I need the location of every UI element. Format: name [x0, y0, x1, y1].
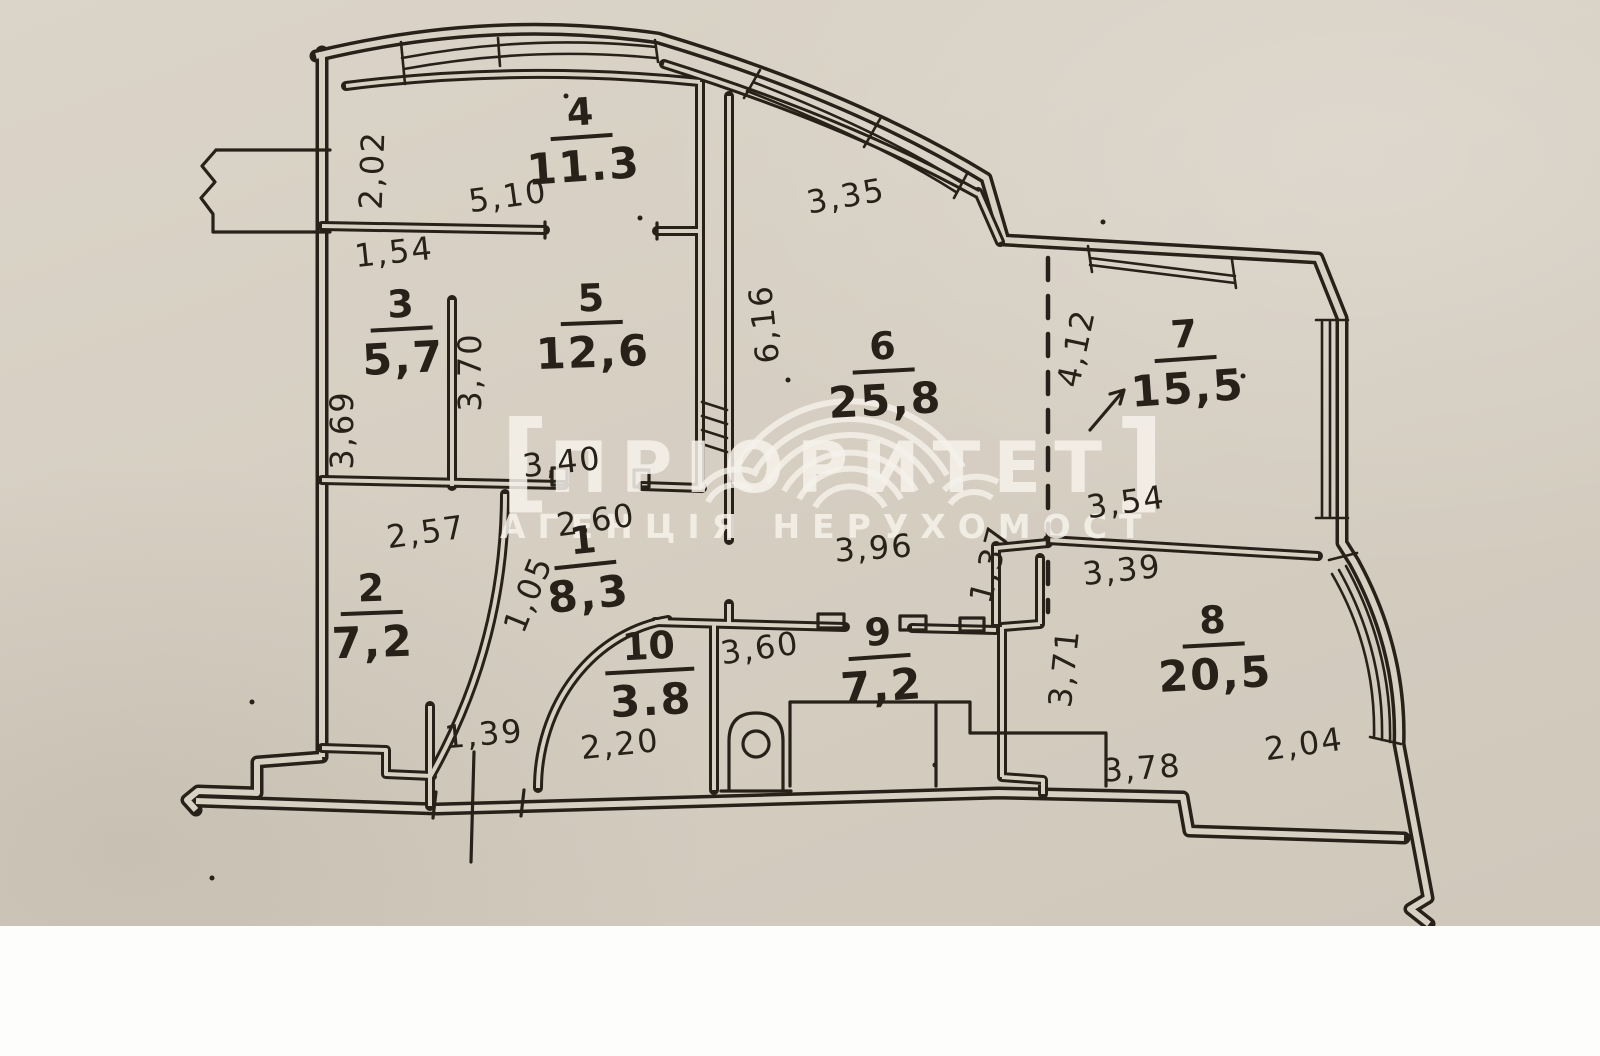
dim-3-70: 3,70: [451, 332, 489, 411]
room-number: 7: [1151, 312, 1217, 363]
toilet-icon: [721, 713, 791, 791]
room-label-10: 10 3.8: [603, 624, 697, 728]
bathroom-partitions: [790, 702, 1106, 786]
room-area: 12,6: [535, 326, 651, 380]
dim-3-78: 3,78: [1101, 746, 1183, 789]
room-area: 3.8: [606, 673, 697, 728]
dim-2-02: 2,02: [352, 130, 393, 211]
room-area: 20,5: [1157, 647, 1274, 703]
room-label-9: 9 7,2: [836, 609, 925, 714]
room-area: 8,3: [545, 566, 632, 624]
room-area: 7,2: [331, 616, 415, 669]
dim-6-16: 6,16: [741, 283, 787, 366]
room-area: 5,7: [361, 332, 446, 386]
entry-arrow-icon: [1090, 390, 1124, 430]
room-label-2: 2 7,2: [329, 567, 415, 670]
room-area: 7,2: [839, 659, 924, 715]
room-number: 3: [368, 282, 433, 332]
room-label-8: 8 20,5: [1154, 597, 1273, 703]
room-area: 15,5: [1129, 360, 1246, 418]
room-label-3: 3 5,7: [358, 282, 445, 386]
room-number: 6: [850, 324, 915, 374]
room-number: 2: [339, 567, 403, 616]
room-area: 25,8: [827, 373, 944, 429]
room-label-6: 6 25,8: [824, 323, 943, 429]
vent-shaft-hatch: [702, 402, 727, 452]
room-label-5: 5 12,6: [533, 276, 651, 380]
room-label-7: 7 15,5: [1126, 310, 1247, 418]
floorplan-scan-page: [ ПРІОРИТЕТ ] АГЕНЦІЯ НЕРУХОМОСТ 4 11.3 …: [0, 0, 1600, 1056]
wall-break-stub: [201, 150, 330, 232]
floorplan-drawing: [0, 0, 1600, 1056]
scan-white-margin: [0, 926, 1600, 1056]
dim-3-96: 3,96: [833, 526, 915, 569]
room-number: 8: [1180, 598, 1245, 648]
room-number: 4: [547, 90, 613, 141]
room-number: 10: [603, 624, 694, 675]
room-number: 5: [559, 277, 623, 326]
dim-1-39: 1,39: [443, 712, 525, 757]
room-number: 9: [845, 610, 911, 661]
dim-3-69: 3,69: [323, 390, 361, 469]
